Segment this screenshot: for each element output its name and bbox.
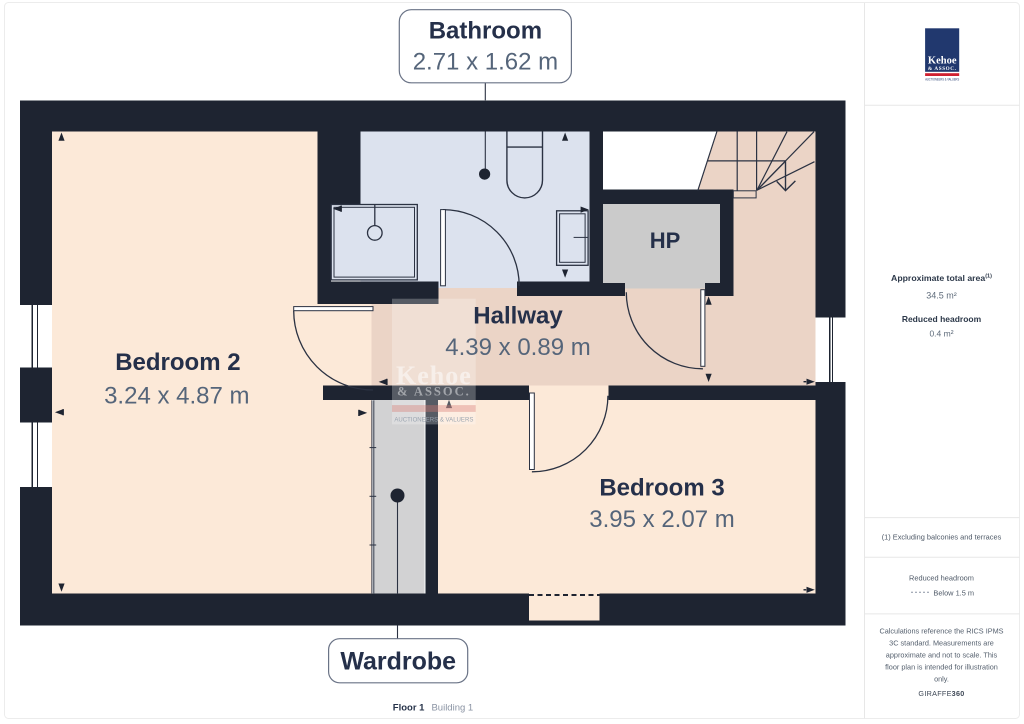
svg-text:floor plan is intended for ill: floor plan is intended for illustration bbox=[885, 663, 998, 672]
svg-text:Below 1.5 m: Below 1.5 m bbox=[933, 589, 974, 598]
svg-text:34.5 m²: 34.5 m² bbox=[926, 291, 957, 301]
svg-text:& ASSOC.: & ASSOC. bbox=[928, 66, 957, 72]
svg-text:3C standard. Measurements are: 3C standard. Measurements are bbox=[889, 639, 994, 648]
svg-text:Hallway: Hallway bbox=[473, 303, 563, 330]
svg-text:approximate and not to scale.: approximate and not to scale. This bbox=[886, 651, 998, 660]
svg-text:AUCTIONEERS & VALUERS: AUCTIONEERS & VALUERS bbox=[925, 77, 960, 81]
svg-text:Bedroom 2: Bedroom 2 bbox=[115, 349, 240, 376]
svg-text:Calculations reference the RIC: Calculations reference the RICS IPMS bbox=[879, 627, 1003, 636]
svg-text:Reduced headroom: Reduced headroom bbox=[909, 574, 974, 583]
svg-text:Approximate total area(1): Approximate total area(1) bbox=[891, 273, 992, 283]
svg-text:Kehoe: Kehoe bbox=[928, 56, 957, 67]
svg-text:Floor 1Building 1: Floor 1Building 1 bbox=[393, 703, 473, 714]
svg-text:only.: only. bbox=[934, 675, 949, 684]
svg-text:4.39 x 0.89 m: 4.39 x 0.89 m bbox=[445, 334, 590, 361]
svg-text:0.4 m²: 0.4 m² bbox=[929, 329, 953, 339]
svg-text:3.95 x 2.07 m: 3.95 x 2.07 m bbox=[589, 506, 734, 533]
svg-text:Bathroom: Bathroom bbox=[429, 18, 542, 45]
svg-text:AUCTIONEERS & VALUERS: AUCTIONEERS & VALUERS bbox=[394, 417, 474, 424]
svg-text:GIRAFFE360: GIRAFFE360 bbox=[918, 689, 964, 698]
svg-text:(1) Excluding balconies and te: (1) Excluding balconies and terraces bbox=[882, 533, 1002, 542]
svg-text:Bedroom 3: Bedroom 3 bbox=[599, 475, 724, 502]
svg-text:3.24 x 4.87 m: 3.24 x 4.87 m bbox=[104, 383, 249, 410]
svg-text:HP: HP bbox=[650, 228, 681, 253]
svg-text:Reduced headroom: Reduced headroom bbox=[902, 314, 982, 324]
svg-text:2.71 x 1.62 m: 2.71 x 1.62 m bbox=[413, 49, 558, 76]
svg-text:Wardrobe: Wardrobe bbox=[340, 648, 456, 676]
svg-text:& ASSOC.: & ASSOC. bbox=[397, 385, 471, 399]
